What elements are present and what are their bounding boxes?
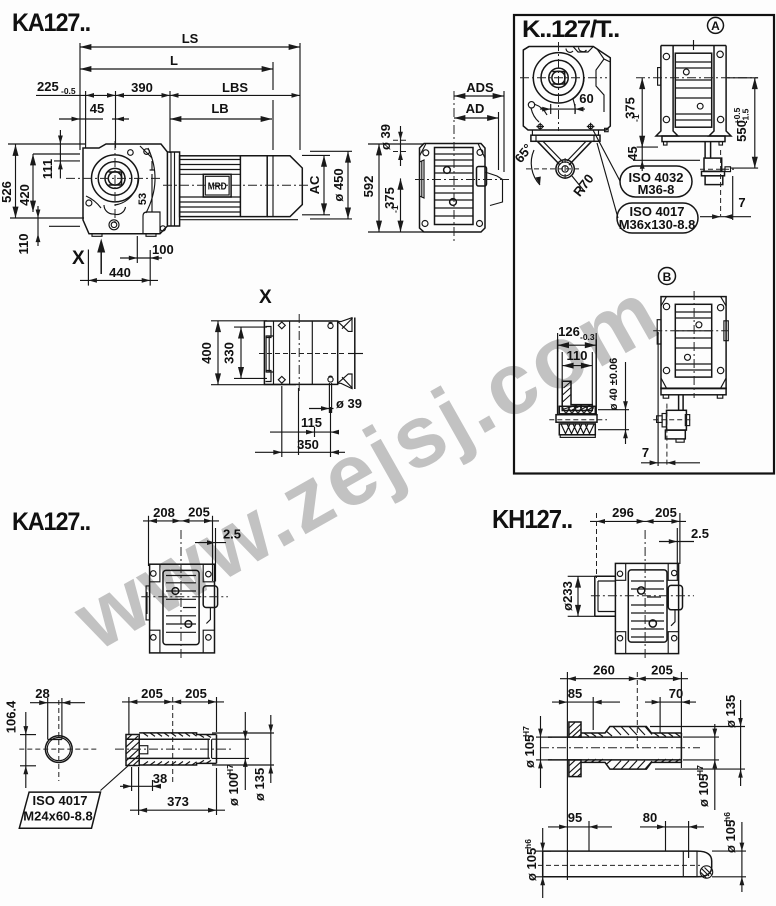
- svg-text:AD: AD: [466, 101, 485, 116]
- svg-text:-1.5: -1.5: [741, 108, 751, 123]
- svg-text:ø 100: ø 100: [226, 773, 241, 806]
- svg-text:R70: R70: [570, 171, 597, 199]
- svg-text:110: 110: [16, 234, 31, 255]
- svg-text:205: 205: [185, 686, 207, 701]
- svg-text:KA127..: KA127..: [12, 508, 90, 536]
- svg-text:ø 135: ø 135: [723, 695, 738, 728]
- svg-text:205: 205: [188, 505, 210, 520]
- svg-text:350: 350: [297, 437, 319, 452]
- svg-text:111: 111: [40, 159, 55, 179]
- svg-text:B: B: [663, 270, 672, 284]
- svg-text:208: 208: [153, 505, 175, 520]
- svg-text:95: 95: [568, 810, 582, 825]
- svg-text:420: 420: [17, 184, 32, 206]
- svg-text:www.zejsj.com: www.zejsj.com: [58, 262, 676, 669]
- svg-text:KA127..: KA127..: [12, 9, 90, 37]
- svg-text:M36-8: M36-8: [638, 182, 675, 197]
- svg-text:KH127..: KH127..: [492, 504, 572, 534]
- svg-text:ø 40 ±0.06: ø 40 ±0.06: [608, 358, 620, 411]
- svg-text:205: 205: [655, 505, 677, 520]
- svg-text:100: 100: [152, 242, 174, 257]
- svg-text:ø 105: ø 105: [522, 735, 537, 768]
- svg-text:592: 592: [361, 176, 376, 198]
- svg-text:-0.3: -0.3: [580, 332, 595, 342]
- svg-text:85: 85: [568, 686, 582, 701]
- svg-text:205: 205: [141, 686, 163, 701]
- svg-text:ø 450: ø 450: [331, 168, 346, 201]
- svg-text:2.5: 2.5: [223, 527, 241, 542]
- svg-text:MRD: MRD: [208, 181, 227, 193]
- svg-text:LB: LB: [211, 101, 228, 116]
- svg-text:ADS: ADS: [466, 80, 494, 95]
- svg-text:45: 45: [625, 146, 640, 160]
- svg-text:ø 105: ø 105: [723, 820, 738, 853]
- svg-text:28: 28: [35, 686, 49, 701]
- svg-text:2.5: 2.5: [691, 526, 709, 541]
- svg-text:X: X: [72, 248, 85, 269]
- svg-text:205: 205: [651, 663, 673, 678]
- svg-text:38: 38: [153, 771, 167, 786]
- svg-text:60: 60: [579, 91, 593, 106]
- svg-text:ø 39: ø 39: [336, 396, 362, 411]
- svg-text:106.4: 106.4: [4, 700, 19, 733]
- svg-text:ø 105: ø 105: [696, 774, 711, 807]
- svg-text:45: 45: [90, 101, 104, 116]
- svg-text:H7: H7: [521, 726, 531, 737]
- svg-text:X: X: [259, 287, 272, 308]
- svg-text:AC: AC: [307, 175, 322, 194]
- svg-text:K..127/T..: K..127/T..: [522, 16, 620, 43]
- svg-text:440: 440: [109, 265, 131, 280]
- svg-text:390: 390: [131, 80, 153, 95]
- svg-text:H7: H7: [695, 765, 705, 776]
- svg-text:330: 330: [222, 342, 237, 364]
- svg-text:526: 526: [0, 181, 14, 203]
- svg-text:-0.5: -0.5: [61, 86, 76, 96]
- svg-text:M24x60-8.8: M24x60-8.8: [23, 809, 92, 824]
- svg-text:-1: -1: [631, 114, 641, 122]
- svg-text:225: 225: [37, 79, 59, 94]
- svg-text:115: 115: [301, 415, 322, 430]
- svg-text:ø 105: ø 105: [524, 848, 539, 881]
- svg-text:53: 53: [137, 193, 149, 205]
- svg-text:LBS: LBS: [222, 80, 248, 95]
- svg-text:h6: h6: [722, 812, 732, 822]
- svg-text:-1: -1: [390, 205, 400, 213]
- svg-text:ø 135: ø 135: [252, 768, 267, 801]
- svg-text:260: 260: [593, 663, 615, 678]
- svg-text:LS: LS: [182, 31, 199, 46]
- svg-text:M36x130-8.8: M36x130-8.8: [619, 217, 696, 232]
- svg-text:110: 110: [567, 348, 588, 363]
- svg-text:80: 80: [643, 810, 657, 825]
- svg-text:h6: h6: [523, 839, 533, 849]
- svg-text:70: 70: [669, 686, 683, 701]
- svg-text:ø 39: ø 39: [378, 124, 393, 150]
- svg-text:ISO 4017: ISO 4017: [33, 793, 88, 808]
- svg-text:296: 296: [612, 505, 634, 520]
- svg-text:400: 400: [199, 342, 214, 364]
- svg-text:373: 373: [167, 794, 189, 809]
- svg-text:ø233: ø233: [560, 581, 575, 611]
- svg-text:7: 7: [642, 445, 649, 460]
- svg-text:A: A: [711, 19, 720, 33]
- svg-text:7: 7: [738, 195, 745, 210]
- svg-text:L: L: [170, 53, 178, 68]
- svg-text:126: 126: [558, 324, 580, 339]
